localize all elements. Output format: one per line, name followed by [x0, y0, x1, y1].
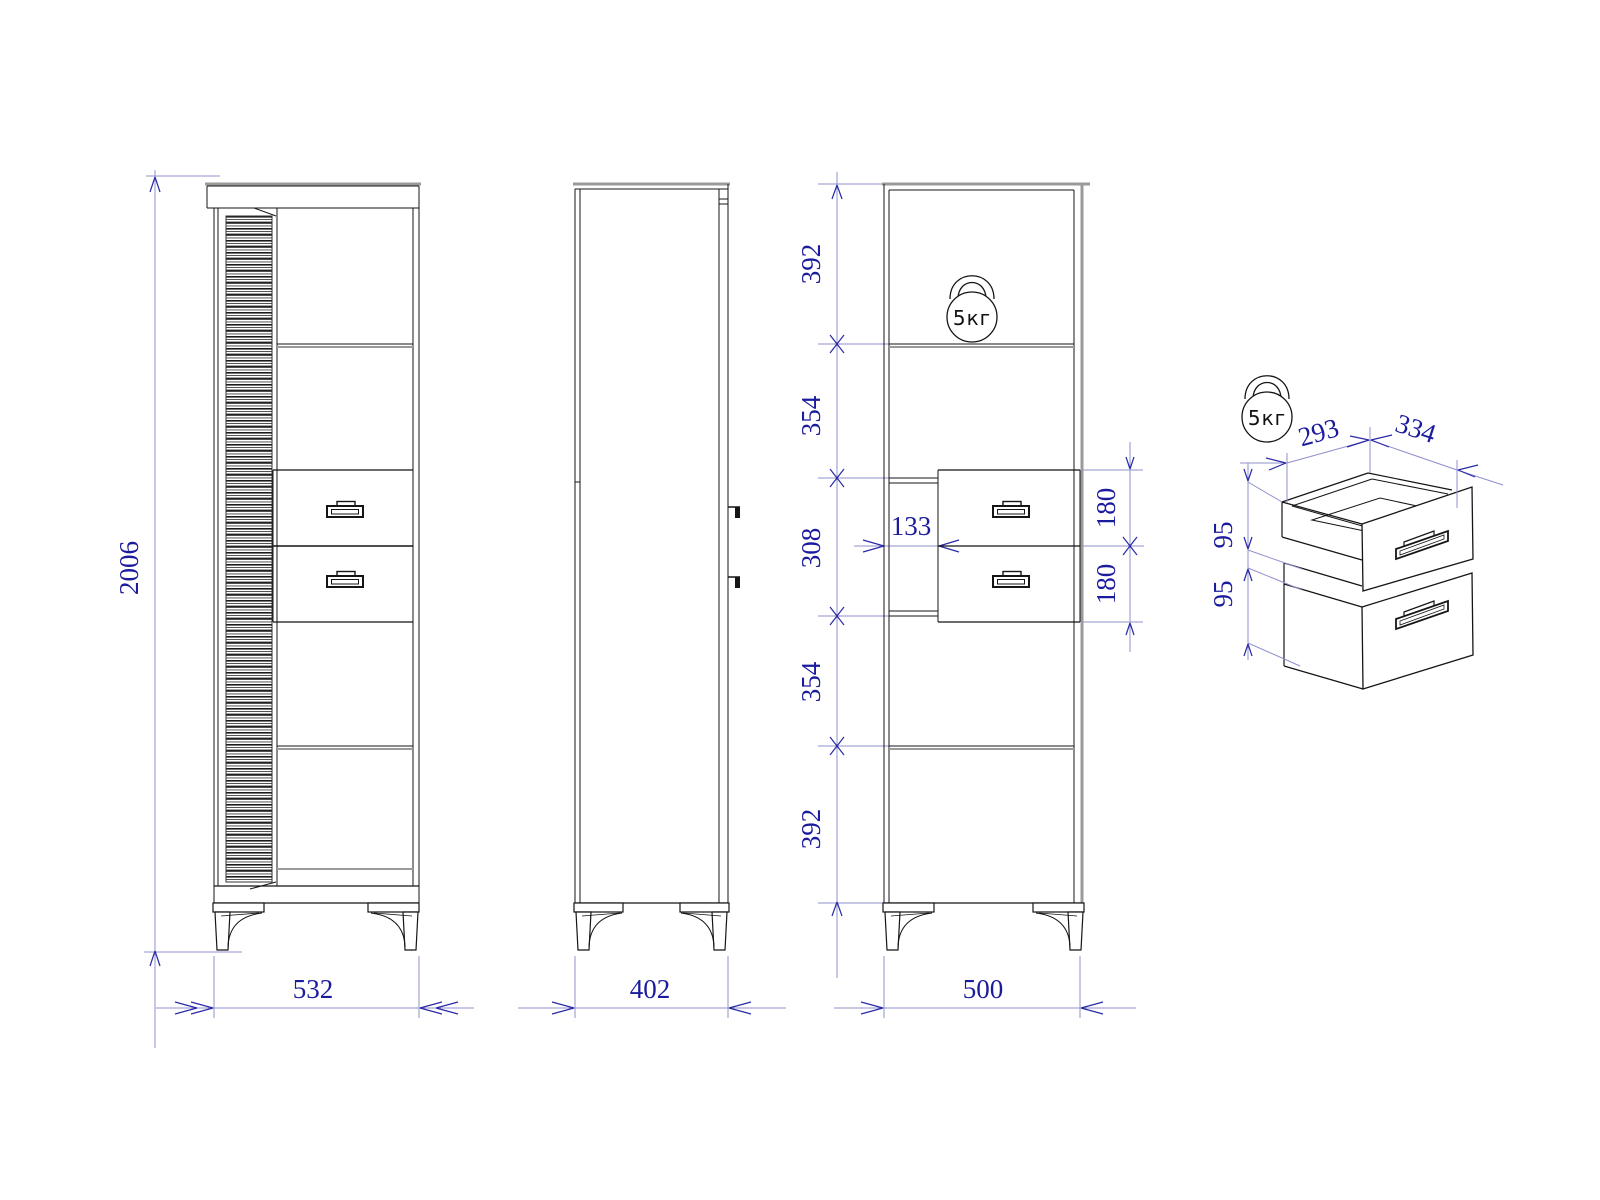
drawer-handle-icon: [993, 502, 1029, 518]
load-label: 5кг: [953, 306, 991, 330]
front-drawer-block: [273, 470, 413, 622]
drawer-detail-view: 5кг: [1208, 376, 1503, 689]
offset-dim-label: 133: [891, 511, 932, 541]
technical-drawing: 2006 532: [0, 0, 1600, 1200]
side-width-dimension: 402: [518, 956, 786, 1018]
drawing-svg: 2006 532: [0, 0, 1600, 1200]
drawer-front-dim-label: 180: [1091, 488, 1121, 529]
section-width-label: 500: [963, 974, 1004, 1004]
detail-height-dimensions: 95 95: [1208, 463, 1302, 666]
section-drawer-block: [938, 470, 1080, 622]
segment-dim-label: 392: [796, 809, 826, 850]
load-weight-icon: 5кг: [1242, 376, 1292, 442]
section-chain-dimension: 392 354 308 354 392: [796, 172, 889, 978]
louvered-panel: [226, 208, 276, 889]
side-handle-profile-icon: [728, 507, 740, 588]
load-weight-icon: 5кг: [947, 276, 997, 342]
width-dim-label: 532: [293, 974, 334, 1004]
segment-dim-label: 392: [796, 244, 826, 285]
section-legs: [883, 903, 1084, 950]
segment-dim-label: 354: [796, 661, 826, 702]
load-label: 5кг: [1248, 406, 1286, 430]
depth-dim-label: 402: [630, 974, 671, 1004]
front-width-dimension: 532: [156, 956, 474, 1018]
front-view: [205, 184, 421, 950]
detail-width-label: 334: [1392, 408, 1440, 449]
segment-dim-label: 354: [796, 395, 826, 436]
front-legs: [213, 903, 419, 950]
side-legs: [574, 903, 729, 950]
segment-dim-label: 308: [796, 528, 826, 569]
drawer-front-dimensions: 180 180: [1082, 442, 1143, 652]
drawer-front-dim-label: 180: [1091, 564, 1121, 605]
section-width-dimension: 500: [834, 956, 1136, 1018]
detail-depth-label: 293: [1295, 412, 1342, 452]
drawer-handle-icon: [327, 502, 363, 518]
height-dim-label: 2006: [114, 541, 144, 595]
drawer-handle-icon: [993, 572, 1029, 588]
detail-drawer-height-label: 95: [1208, 522, 1238, 549]
detail-drawer-height-label: 95: [1208, 581, 1238, 608]
drawer-handle-icon: [327, 572, 363, 588]
section-view: 392 354 308 354 392 133: [796, 172, 1144, 1018]
side-view: [573, 184, 740, 950]
detail-drawer-front: [1362, 573, 1473, 689]
